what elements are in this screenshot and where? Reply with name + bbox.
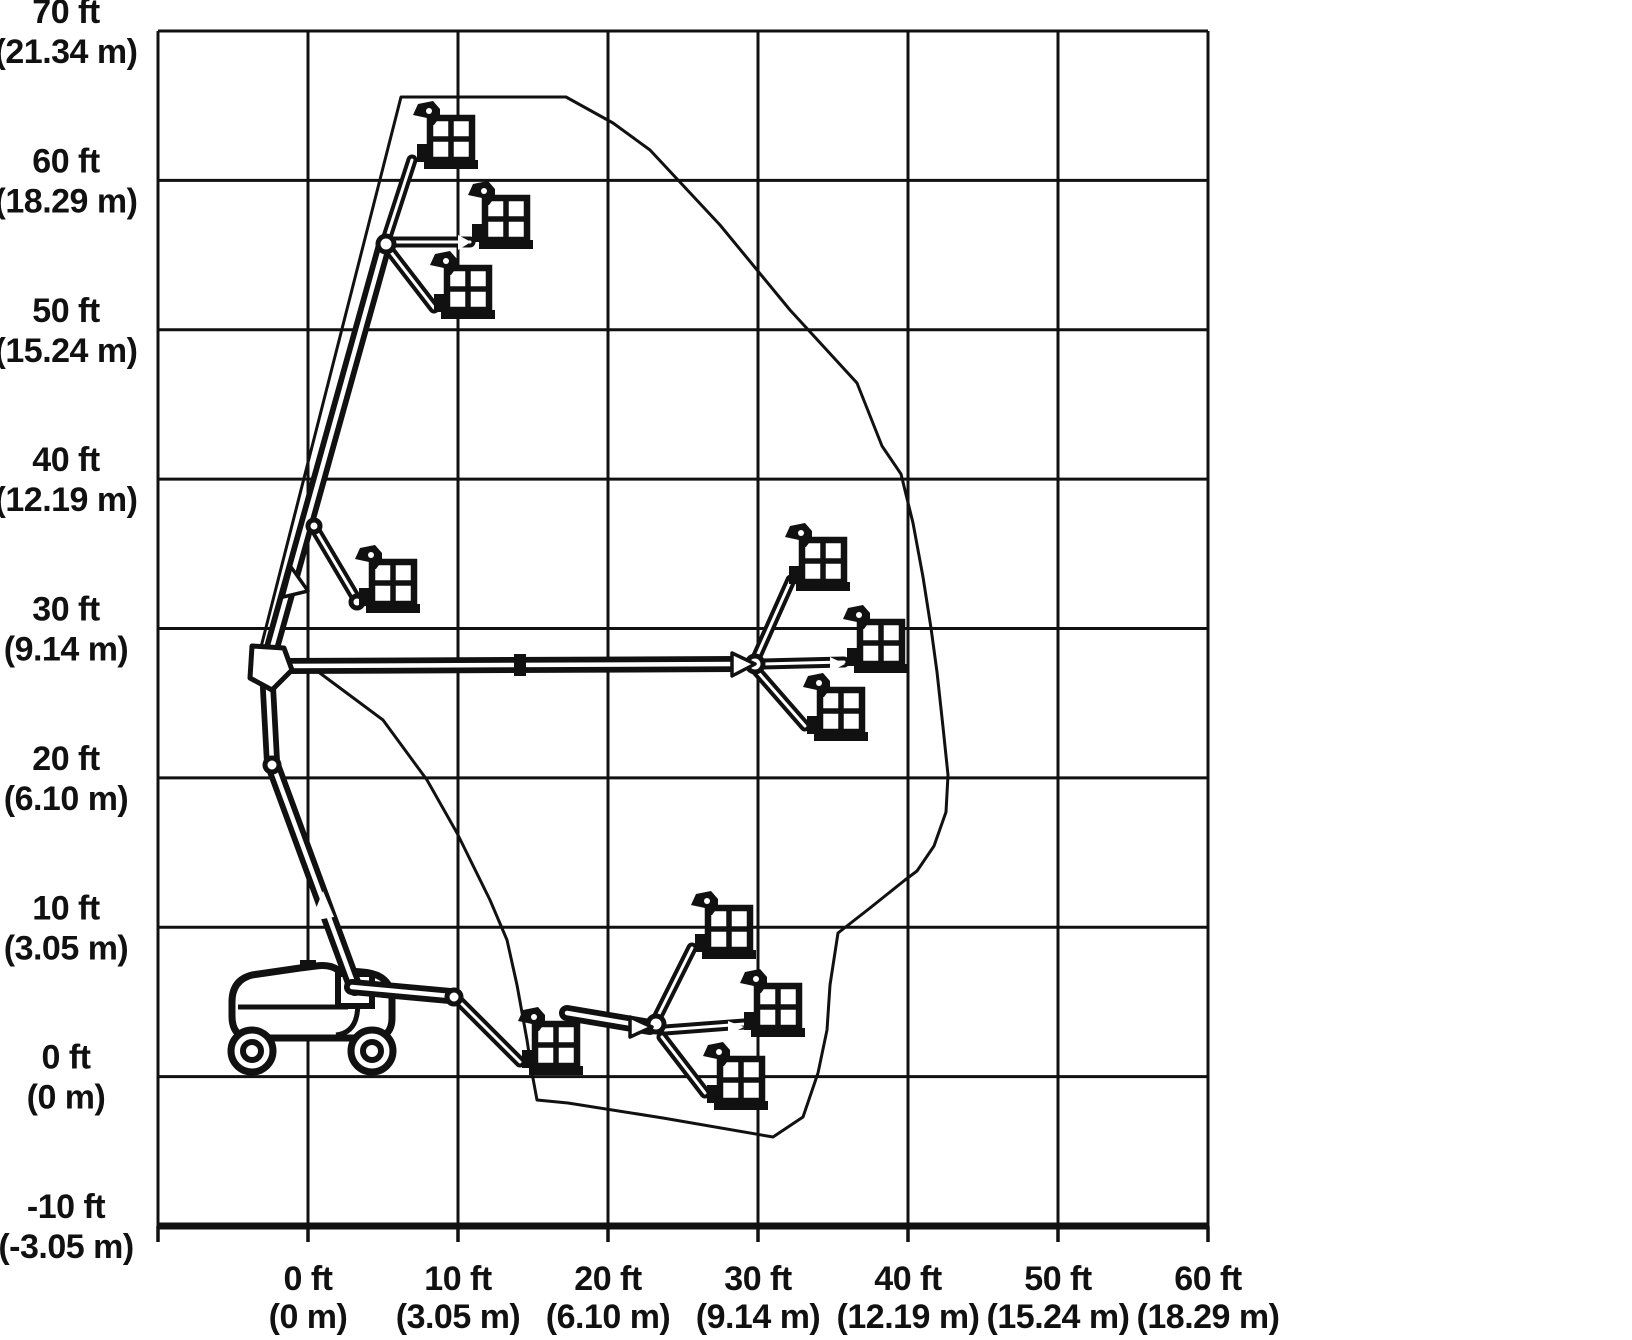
console-detail xyxy=(368,552,374,558)
jib-outreach-down-core xyxy=(757,671,805,726)
y-axis-label-ft: 50 ft xyxy=(32,292,100,330)
x-axis-label-ft: 60 ft xyxy=(1174,1260,1242,1298)
x-axis-label-ft: 10 ft xyxy=(424,1260,492,1298)
boom-pivot-joint xyxy=(265,758,279,772)
y-axis-label-m: (3.05 m) xyxy=(4,929,129,967)
reach-envelope-diagram: 70 ft(21.34 m)60 ft(18.29 m)50 ft(15.24 … xyxy=(0,0,1632,1340)
basket-control-console xyxy=(740,969,767,993)
main-boom-horizontal-core xyxy=(284,664,737,666)
basket-control-console xyxy=(355,545,382,569)
basket-control-console xyxy=(430,251,457,275)
console-detail xyxy=(856,612,862,618)
jib-top-down-core xyxy=(387,247,434,308)
x-axis-label-m: (18.29 m) xyxy=(1137,1298,1280,1336)
turret-elbow-joint xyxy=(250,646,292,690)
y-axis-label-ft: 40 ft xyxy=(32,441,100,479)
x-axis-label-ft: 40 ft xyxy=(874,1260,942,1298)
platform-max-outreach-jib-down xyxy=(803,673,868,741)
jib-low-down-core xyxy=(662,1037,705,1093)
basket-control-console xyxy=(843,605,870,629)
basket-control-console xyxy=(803,673,830,697)
y-axis-label-m: (12.19 m) xyxy=(0,481,137,519)
jib-top-up-core xyxy=(386,160,412,240)
boom-pivot-joint xyxy=(447,990,461,1004)
platform-below-grade-jib-level xyxy=(740,969,805,1037)
platform-full-height-jib-up xyxy=(413,101,478,169)
y-axis-label-m: (15.24 m) xyxy=(0,332,137,370)
y-axis-label-ft: 10 ft xyxy=(32,889,100,927)
boom-lift-chassis xyxy=(231,960,393,1072)
y-axis-label-m: (-3.05 m) xyxy=(0,1228,134,1266)
console-detail xyxy=(753,976,759,982)
x-axis-label-m: (15.24 m) xyxy=(987,1298,1130,1336)
x-axis-label-m: (9.14 m) xyxy=(696,1298,821,1336)
platform-full-height-jib-level xyxy=(468,181,533,249)
x-axis-label-ft: 30 ft xyxy=(724,1260,792,1298)
y-axis-label-m: (0 m) xyxy=(27,1079,106,1117)
y-axis-label-m: (18.29 m) xyxy=(0,182,137,220)
boom-pivot-joint xyxy=(308,520,320,532)
boom-telescope-collar xyxy=(514,654,526,676)
jib-mid-height-core xyxy=(312,524,357,600)
y-axis-label-ft: 20 ft xyxy=(32,740,100,778)
riser-arm-lower-core xyxy=(274,768,355,988)
y-axis-label-ft: -10 ft xyxy=(27,1188,105,1226)
jib-low-up-core xyxy=(658,948,692,1016)
x-axis-label-m: (6.10 m) xyxy=(546,1298,671,1336)
platform-positions xyxy=(355,101,908,1110)
x-axis-label-ft: 50 ft xyxy=(1024,1260,1092,1298)
console-detail xyxy=(816,680,822,686)
wheel-hub xyxy=(363,1042,381,1060)
y-axis-label-ft: 0 ft xyxy=(42,1039,91,1077)
y-axis-label-ft: 70 ft xyxy=(32,0,100,31)
y-axis-label-ft: 30 ft xyxy=(32,591,100,629)
platform-full-height-jib-down xyxy=(430,251,495,319)
basket-control-console xyxy=(785,523,812,547)
y-axis-label-ft: 60 ft xyxy=(32,142,100,180)
boom-pivot-joint xyxy=(378,236,394,252)
platform-below-grade-jib-up xyxy=(691,891,756,959)
console-detail xyxy=(443,258,449,264)
basket-control-console xyxy=(703,1042,730,1066)
x-axis-label-ft: 20 ft xyxy=(574,1260,642,1298)
x-axis-label-m: (3.05 m) xyxy=(396,1298,521,1336)
y-axis-label-m: (9.14 m) xyxy=(4,631,129,669)
jib-droop-core xyxy=(457,999,520,1062)
x-axis-label-ft: 0 ft xyxy=(284,1260,333,1298)
platform-max-outreach-jib-up xyxy=(785,523,850,591)
basket-control-console xyxy=(413,101,440,125)
console-detail xyxy=(531,1014,537,1020)
wheel-hub xyxy=(243,1042,261,1060)
console-detail xyxy=(704,898,710,904)
y-axis-label-m: (21.34 m) xyxy=(0,33,137,71)
console-detail xyxy=(426,108,432,114)
basket-control-console xyxy=(691,891,718,915)
platform-mid-height xyxy=(355,545,420,613)
jib-outreach-up-core xyxy=(757,580,791,656)
basket-control-console xyxy=(468,181,495,205)
x-axis-label-m: (12.19 m) xyxy=(837,1298,980,1336)
console-detail xyxy=(716,1049,722,1055)
x-axis-label-m: (0 m) xyxy=(269,1298,348,1336)
console-detail xyxy=(481,188,487,194)
console-detail xyxy=(798,530,804,536)
y-axis-label-m: (6.10 m) xyxy=(4,780,129,818)
platform-max-outreach-jib-level xyxy=(843,605,908,673)
